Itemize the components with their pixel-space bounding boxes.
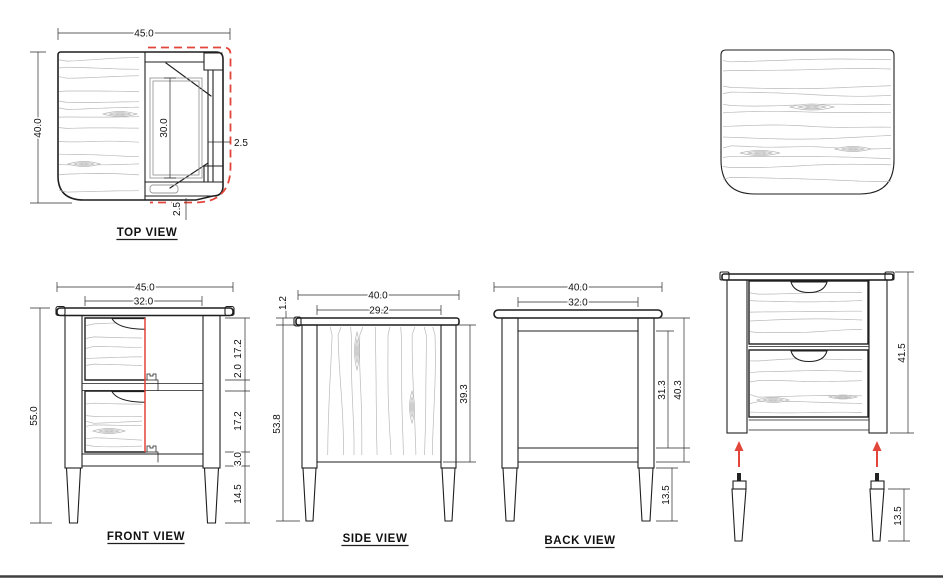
tabletop <box>722 274 893 280</box>
side-view: 40.0 29.2 1.2 53.8 39.3 SIDE VIEW <box>272 290 476 546</box>
grain-line <box>424 327 426 455</box>
leg-screw <box>875 473 879 481</box>
grain-line <box>59 141 139 142</box>
dim-back-leg: 13.5 <box>661 485 672 505</box>
dim-front-drawer-top: 17.2 <box>233 339 244 359</box>
leg <box>302 325 317 468</box>
leg <box>65 316 82 469</box>
grain-line <box>328 327 332 455</box>
dim-front-rail: 3.0 <box>233 452 244 466</box>
grain-line <box>86 403 142 404</box>
grain-line <box>375 327 377 455</box>
leg-foot <box>442 468 455 521</box>
grain-line <box>750 381 862 383</box>
dim-top-width: 45.0 <box>134 29 154 40</box>
view-title-side: SIDE VIEW <box>343 533 408 545</box>
grain-line <box>59 128 139 129</box>
wood-grain <box>86 403 142 447</box>
dim-back-inner-width: 32.0 <box>568 298 588 309</box>
leg <box>441 325 456 468</box>
dim-side-panel-width: 29.2 <box>369 306 389 317</box>
assembly-dim-lines <box>888 272 914 541</box>
dim-front-gap: 2.0 <box>233 364 244 378</box>
dim-top-side-offset: 2.5 <box>234 138 248 149</box>
drawer-handle-notch <box>112 392 145 403</box>
view-title-back: BACK VIEW <box>544 535 615 547</box>
grain-line <box>723 111 891 113</box>
leg-cap <box>871 481 884 489</box>
grain-line <box>723 86 891 89</box>
dim-top-back-offset: 2.5 <box>172 202 183 216</box>
grain-line <box>351 327 354 455</box>
tabletop <box>494 310 662 318</box>
tabletop-panel-outline <box>721 50 894 194</box>
grain-line <box>432 327 435 455</box>
detached-leg <box>732 473 746 541</box>
leg-body <box>732 489 746 541</box>
leg-foot <box>303 468 316 521</box>
assembly-view: 41.5 13.5 <box>720 272 914 541</box>
arrow-up-icon <box>735 441 744 467</box>
leg-foot <box>639 468 653 521</box>
view-title-front: FRONT VIEW <box>107 531 185 543</box>
wood-grain <box>86 323 142 366</box>
grain-line <box>59 76 139 78</box>
grain-line <box>750 371 862 373</box>
side-post <box>727 280 747 433</box>
grain-line <box>59 154 139 157</box>
back-rails <box>518 331 638 462</box>
dim-front-leg: 14.5 <box>233 484 244 504</box>
grain-line <box>86 337 142 339</box>
dim-front-drawer-width: 32.0 <box>134 297 154 308</box>
dim-assembly-leg-height: 13.5 <box>893 506 904 526</box>
grain-line <box>338 327 343 455</box>
grain-line <box>86 438 142 440</box>
dim-top-inner: 30.0 <box>159 118 170 138</box>
top-view: 45.0 40.0 30.0 2.5 2.5 TOP VIEW <box>30 28 248 240</box>
wood-grain <box>750 292 862 332</box>
dim-back-panel-height: 31.3 <box>657 380 668 400</box>
wood-grain <box>59 58 139 193</box>
grain-line <box>86 346 142 348</box>
grain-line <box>388 327 391 455</box>
grain-line <box>86 421 142 423</box>
grain-line <box>723 92 891 96</box>
grain-line <box>723 59 891 62</box>
grain-line <box>59 107 139 109</box>
grain-line <box>59 190 139 192</box>
dim-side-width: 40.0 <box>368 291 388 302</box>
dim-side-top-thickness: 1.2 <box>278 296 289 310</box>
wood-grain <box>750 359 862 413</box>
grain-line <box>750 319 862 321</box>
grain-line <box>723 125 891 127</box>
grain-line <box>723 164 891 167</box>
wood-grain <box>328 327 436 455</box>
top-view-dim-lines <box>30 28 230 220</box>
grain-line <box>723 177 891 181</box>
detached-leg <box>870 473 884 541</box>
tabletop <box>296 318 459 325</box>
drawer-handle-notch <box>112 319 145 330</box>
leg <box>203 316 220 469</box>
dim-back-body-height: 40.3 <box>673 380 684 400</box>
tabletop <box>57 308 233 316</box>
grain-line <box>750 301 862 302</box>
front-view: 45.0 32.0 55.0 17.2 2.0 17.2 3.0 14.5 FR… <box>29 282 250 544</box>
bottom-rail <box>82 454 203 466</box>
dim-front-width: 45.0 <box>135 283 155 294</box>
drawer-box-inner <box>150 78 202 178</box>
dim-side-height: 53.8 <box>272 414 283 434</box>
grain-line <box>723 136 891 140</box>
view-title-top: TOP VIEW <box>117 227 178 239</box>
leg-cap <box>733 481 746 489</box>
grain-line <box>59 117 139 118</box>
grain-line <box>59 173 139 175</box>
dim-back-width: 40.0 <box>568 283 588 294</box>
leg-screw <box>737 473 741 481</box>
drawing-sheet: 45.0 40.0 30.0 2.5 2.5 TOP VIEW <box>0 0 943 581</box>
dim-front-height: 55.0 <box>29 406 40 426</box>
leg-foot <box>503 468 517 521</box>
back-view: 40.0 32.0 31.3 40.3 13.5 BACK VIEW <box>494 282 690 548</box>
grain-line <box>750 311 862 312</box>
grain-line <box>86 416 142 417</box>
grain-line <box>723 69 891 72</box>
grain-line <box>86 425 142 426</box>
dim-side-panel-height: 39.3 <box>459 384 470 404</box>
grain-line <box>59 91 139 92</box>
side-post <box>869 280 887 433</box>
leg <box>638 318 654 468</box>
furniture-technical-drawing: 45.0 40.0 30.0 2.5 2.5 TOP VIEW <box>0 0 943 581</box>
grain-line <box>59 101 139 102</box>
dim-top-depth: 40.0 <box>33 118 44 138</box>
leg-foot <box>67 468 81 523</box>
drawer-handle-notch <box>791 282 827 293</box>
dim-front-drawer-bottom: 17.2 <box>233 411 244 431</box>
dim-assembly-body-height: 41.5 <box>897 343 908 363</box>
grain-line <box>59 67 139 69</box>
drawer-clip <box>147 374 156 452</box>
tabletop-panel-view <box>721 50 894 194</box>
grain-line <box>59 58 139 62</box>
arrow-up-icon <box>873 441 882 467</box>
rails <box>82 384 203 391</box>
wood-grain <box>723 59 891 182</box>
grain-line <box>401 327 404 455</box>
grain-line <box>360 327 363 455</box>
leg-body <box>870 489 884 541</box>
grain-line <box>86 445 142 447</box>
side-panel-edges <box>317 325 441 462</box>
grain-line <box>86 364 142 365</box>
leg <box>502 318 518 468</box>
grain-line <box>723 156 891 159</box>
grain-line <box>86 357 142 359</box>
leg-foot <box>205 468 219 523</box>
grain-line <box>750 412 862 413</box>
grain-line <box>750 330 862 333</box>
grain-line <box>412 327 416 455</box>
drawer-handle-notch <box>791 351 827 362</box>
rail-tab <box>150 185 178 193</box>
